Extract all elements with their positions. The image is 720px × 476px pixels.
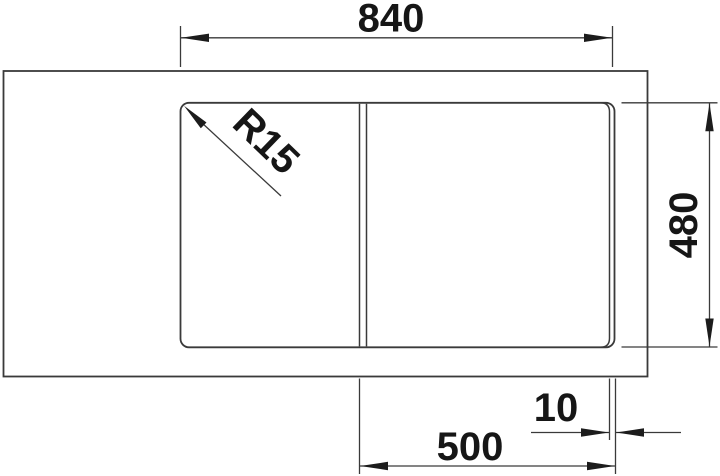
bowl-right-step-edge (601, 103, 610, 347)
arrowhead-left-icon (616, 428, 644, 436)
arrowhead-up-icon (705, 103, 713, 131)
sink-dimension-drawing: R15 840 480 (0, 0, 720, 476)
arrowhead-right-icon (581, 428, 609, 436)
sink-outer-edge (4, 71, 648, 377)
edge-offset-label: 10 (534, 386, 579, 430)
arrowhead-right-icon (584, 34, 612, 42)
depth-label: 480 (662, 192, 706, 259)
drawing-canvas: R15 840 480 (0, 0, 720, 476)
dimension-edge-offset: 10 (531, 386, 681, 437)
corner-radius-label: R15 (224, 100, 307, 183)
arrowhead-left-icon (360, 462, 388, 470)
dimension-overall-width: 840 (181, 0, 613, 67)
overall-width-label: 840 (358, 0, 425, 41)
dimension-depth: 480 (622, 103, 718, 347)
dimension-corner-radius: R15 (184, 100, 308, 196)
arrowhead-right-icon (587, 462, 615, 470)
arrowhead-up-left-icon (184, 106, 207, 129)
dimension-bowl-width: 500 (360, 425, 616, 470)
bowl-divider (360, 104, 367, 347)
arrowhead-down-icon (705, 319, 713, 347)
sink-outline (4, 71, 648, 377)
bowl-width-label: 500 (437, 425, 504, 469)
arrowhead-left-icon (181, 34, 209, 42)
